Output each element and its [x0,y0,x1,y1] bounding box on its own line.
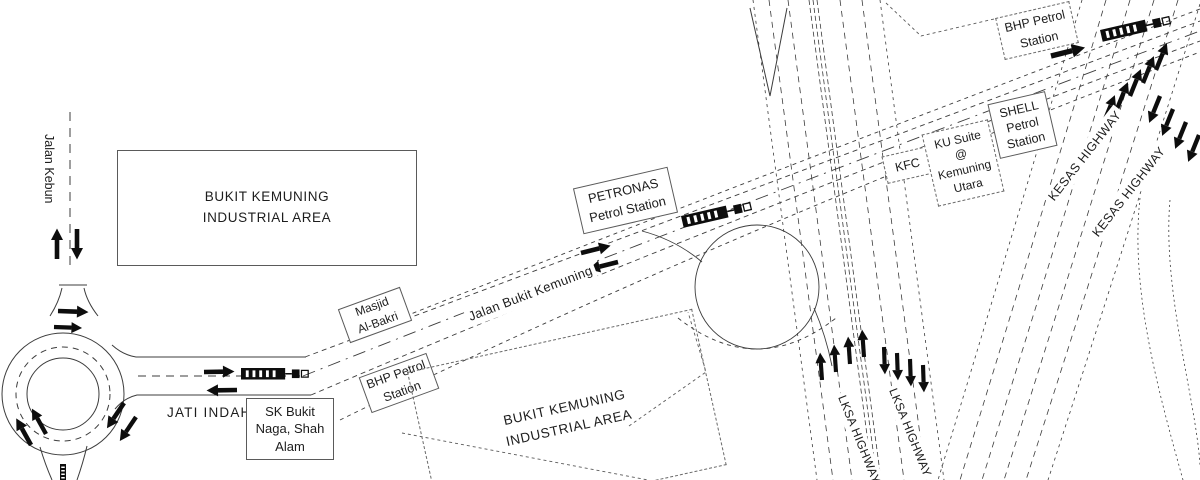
highway-up-arrow-icon [843,336,856,364]
highway-down-arrow-icon [1157,107,1178,138]
truck-icon [681,200,752,227]
down-left-arrow-icon [102,400,129,432]
sk-bukit-naga-label: SK Bukit Naga, Shah Alam [246,398,334,460]
industrial-area-north-label: BUKIT KEMUNING INDUSTRIAL AREA [117,150,417,266]
highway-down-arrow-icon [1183,133,1200,164]
up-arrow-icon [51,229,63,260]
map-canvas: Jalan Kebun BUKIT KEMUNING INDUSTRIAL AR… [0,0,1200,480]
small-vehicle-icon [60,464,66,480]
jati-indah-label: JATI INDAH [167,403,252,423]
highway-down-arrow-icon [905,359,917,387]
right-arrow-icon [54,321,82,333]
truck-icon [241,368,308,380]
down-arrow-icon [71,229,83,260]
highway-up-arrow-icon [815,352,828,380]
truck-icon [1100,14,1171,41]
right-arrow-icon [580,240,612,259]
highway-down-arrow-icon [918,365,930,393]
right-arrow-icon [58,305,89,318]
highway-down-arrow-icon [1170,120,1191,151]
jalan-kebun-label: Jalan Kebun [40,131,58,207]
highway-down-arrow-icon [892,353,904,381]
highway-down-arrow-icon [879,347,891,375]
jalan-bukit-kemuning-road [303,9,1200,420]
roundabout-circle [2,333,124,480]
kesas-highway-road [938,0,1200,480]
